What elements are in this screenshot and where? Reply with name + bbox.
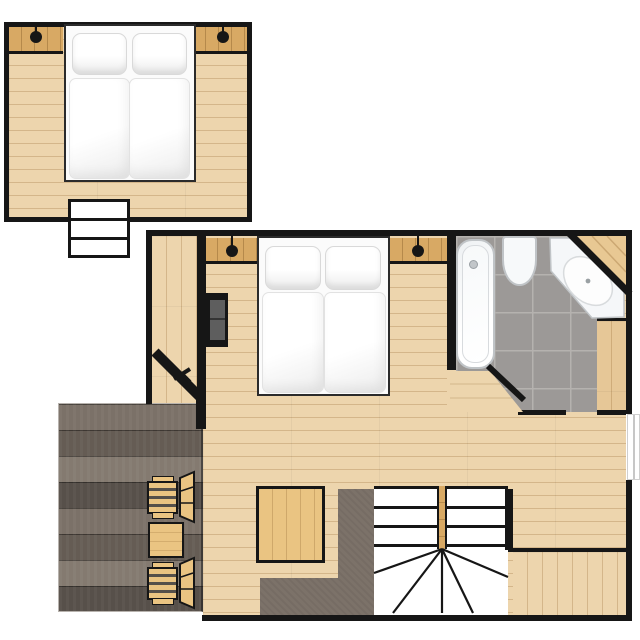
armchair-seat [210,300,225,340]
wall-left [146,230,152,404]
wardrobe [256,486,325,563]
wall-door-stub [196,398,206,429]
wall-corridor [197,236,206,406]
terrace-deck [58,403,203,612]
stair-stringer [437,486,447,549]
wall-lamp-icon [412,245,424,257]
stair-tread [374,525,437,528]
double-bed [64,24,196,182]
wall-lamp-icon [217,31,229,43]
wall-right [626,480,632,621]
deck-chair [152,598,174,605]
duvet [69,78,130,179]
step-tread [71,237,127,240]
wall-lamp-icon [30,31,42,43]
bathtub [456,239,495,369]
bathroom-wood-strip [597,318,626,412]
duvet [262,292,324,393]
deck-chair [152,512,174,519]
deck-chair [147,481,178,514]
floor-plan [0,0,640,640]
double-bed [257,236,390,396]
entry-corridor-floor [152,236,197,404]
pillow [72,33,127,75]
stair-landing-floor [513,552,626,615]
stair-tread [374,544,437,547]
wall-bathroom-bottom [518,410,566,415]
window [627,414,640,480]
window-pane [633,415,635,479]
wall-lamp-icon [226,245,238,257]
side-table [148,522,184,558]
wall-bathroom-bottom [597,410,626,415]
stair-tread [447,525,505,528]
duvet [129,78,190,179]
pillow [132,33,187,75]
deck-chair [147,567,178,600]
step-tread [71,218,127,221]
pillow [265,246,321,290]
armchair [203,293,228,347]
stair-wall-block [338,489,374,615]
toilet [502,236,537,286]
stair-tread [447,506,505,509]
wall-bottom [202,615,632,621]
wall-bathroom-divider [447,236,456,370]
wall-right [626,230,632,414]
duvet [324,292,386,393]
stair-tread [374,506,437,509]
wall-stairs-right [505,489,513,550]
pillow [325,246,381,290]
wall-top [146,230,632,236]
wall-landing [508,548,626,552]
stair-wall-block [260,578,340,615]
bathtub-drain-icon [469,260,478,269]
entry-steps [68,199,130,258]
stair-tread [447,544,505,547]
